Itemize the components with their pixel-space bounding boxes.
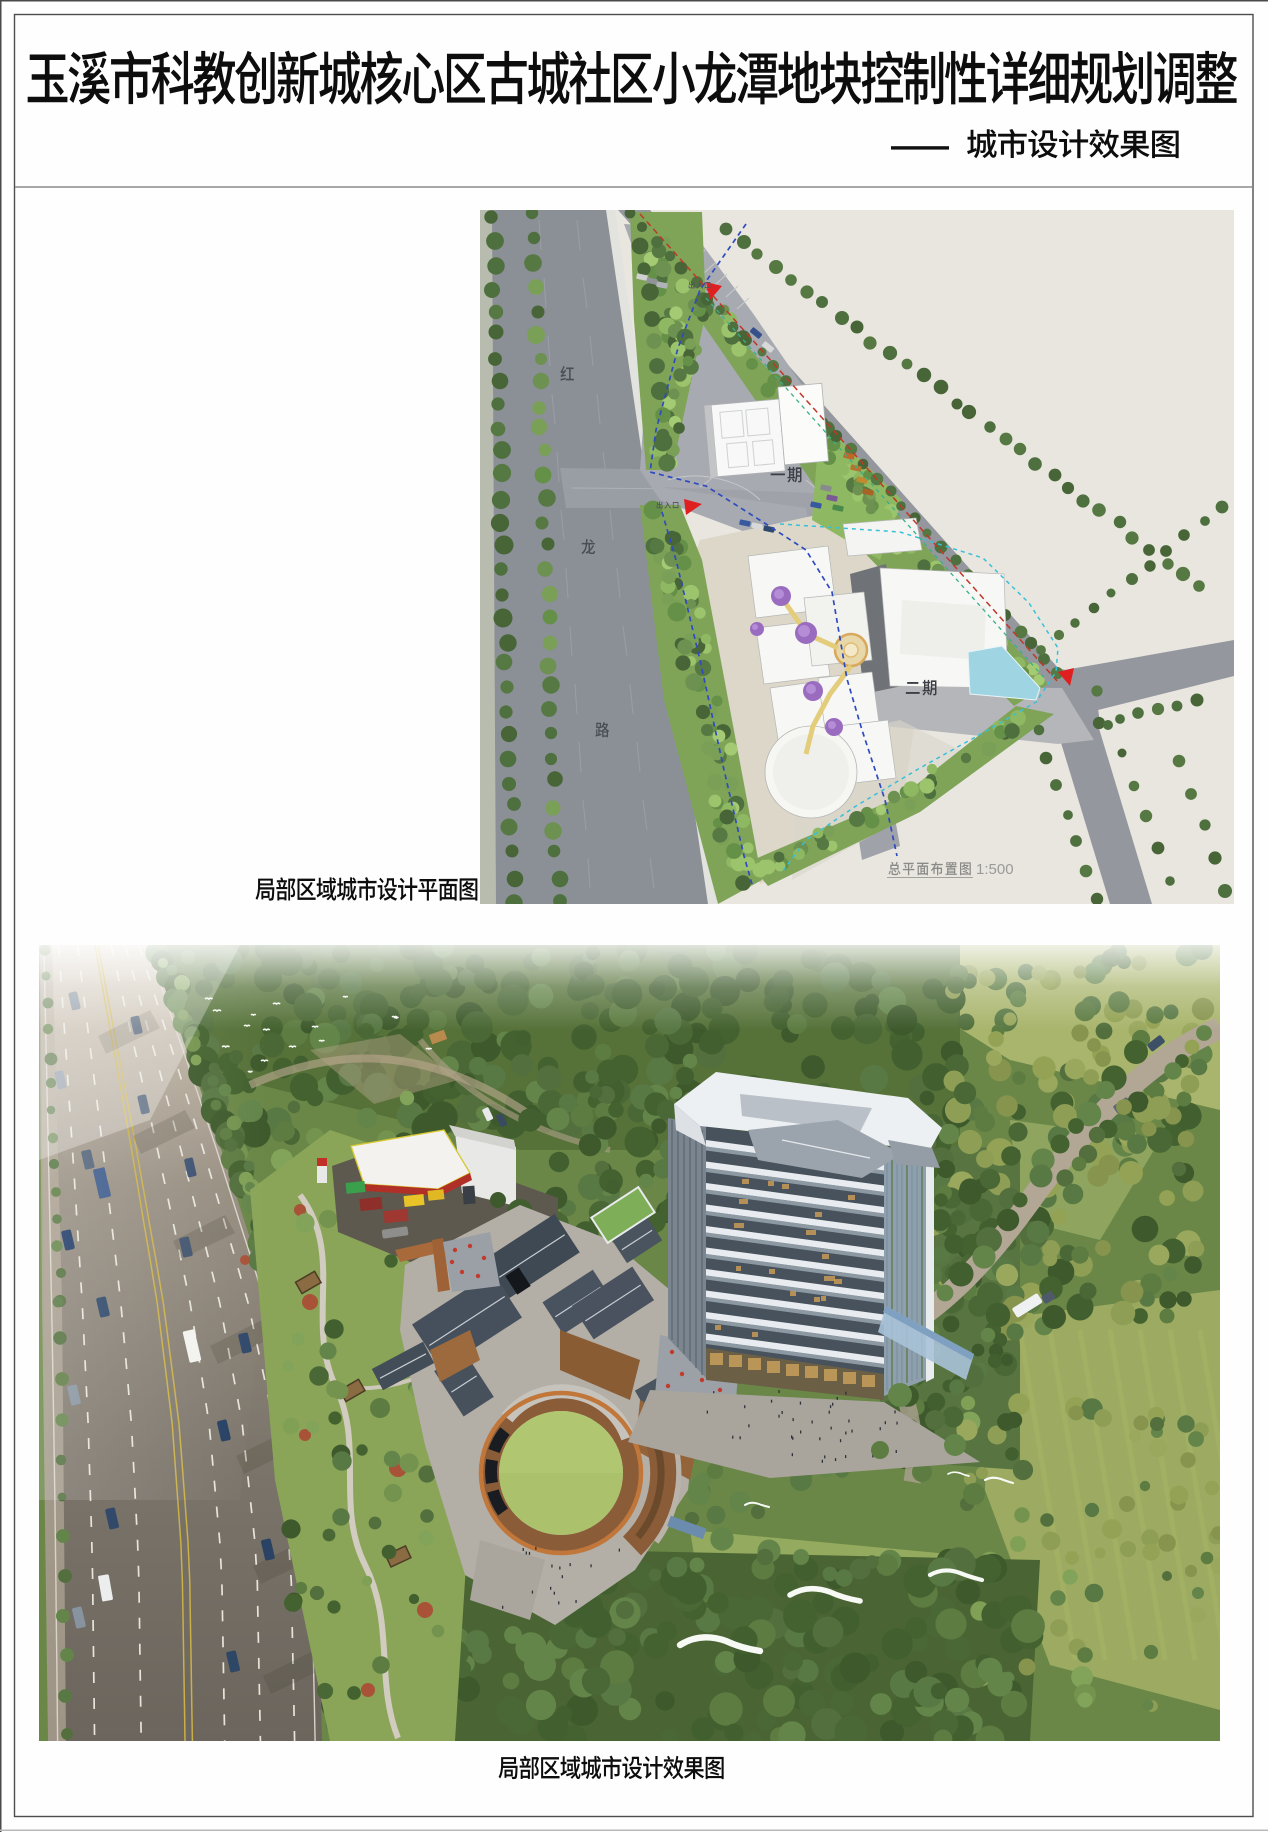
svg-text:1:500: 1:500 [976,861,1014,878]
